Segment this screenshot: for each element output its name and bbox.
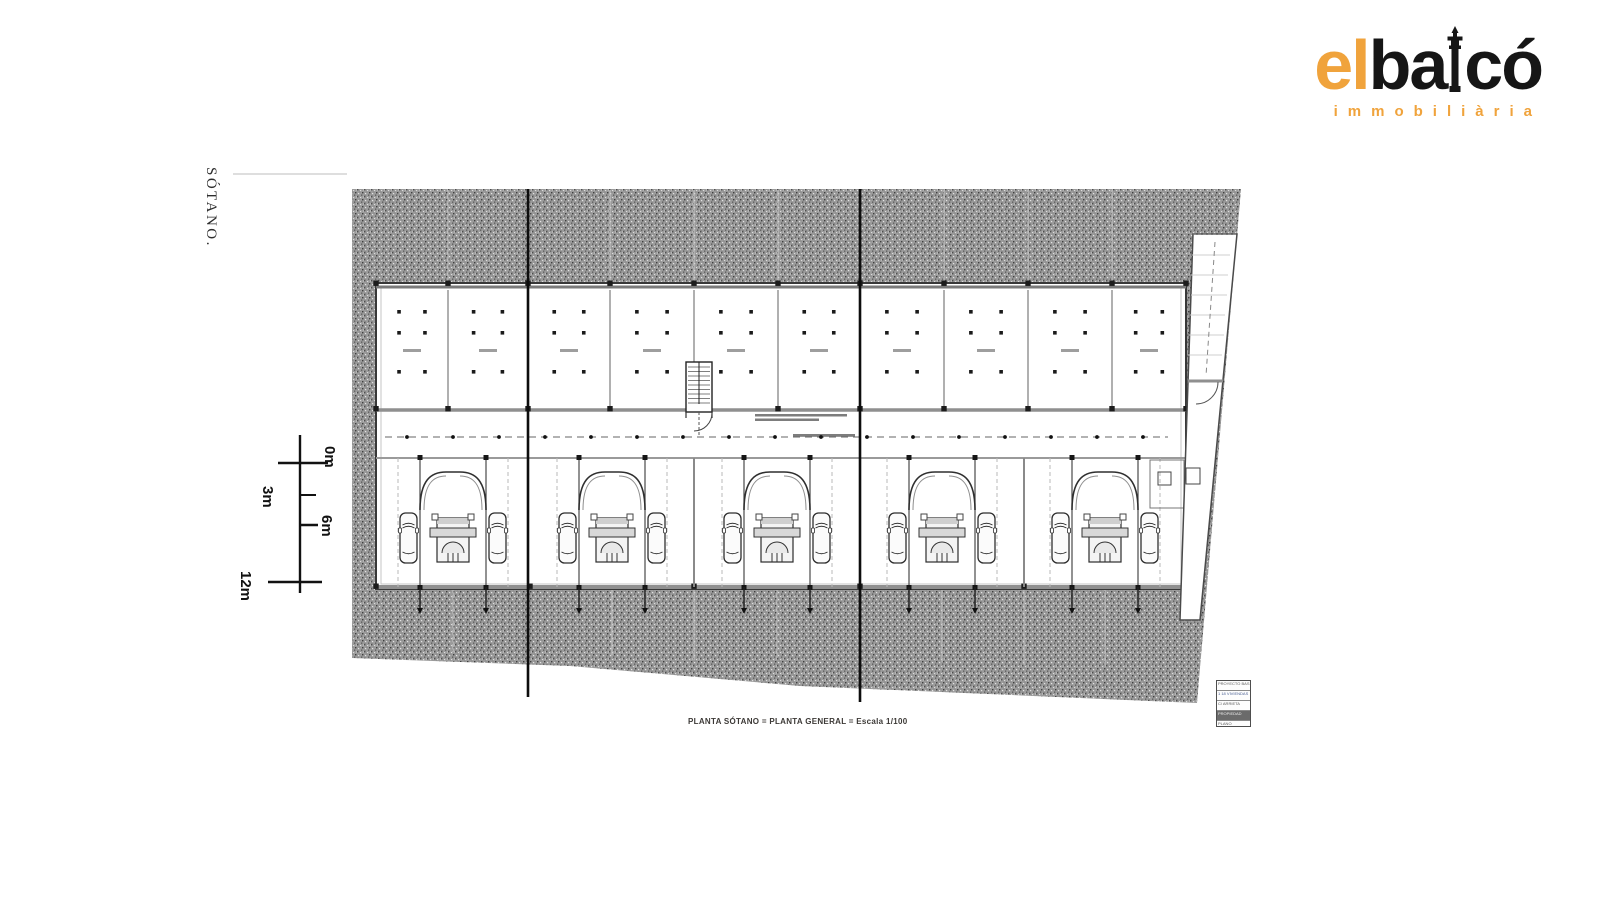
- title-block-row: PROYECTO BAS: [1217, 681, 1250, 691]
- scale-label-6m: 6m: [318, 515, 335, 537]
- title-block-row: PLANO: [1217, 721, 1250, 727]
- brand-word-b: có: [1464, 26, 1542, 104]
- title-block-row: PROPIEDAD: [1217, 711, 1250, 721]
- scale-label-0m: 0m: [321, 446, 338, 468]
- title-block-row: 1 18 VIVIENDAS: [1217, 691, 1250, 701]
- brand-wordmark: elba có: [1278, 26, 1542, 100]
- plan-caption: PLANTA SÓTANO = PLANTA GENERAL = Escala …: [688, 717, 907, 726]
- brand-prefix: el: [1314, 26, 1368, 104]
- title-block-row: C/ ARRIETA: [1217, 701, 1250, 711]
- balcony-column-icon: [1447, 26, 1463, 92]
- title-block: PROYECTO BAS 1 18 VIVIENDAS C/ ARRIETA P…: [1216, 680, 1251, 727]
- floor-plan-drawing: 0m 3m 6m 12m: [0, 0, 1600, 900]
- plan-side-label: SÓTANO.: [202, 167, 219, 248]
- scale-label-12m: 12m: [237, 571, 254, 601]
- scale-bar: 0m 3m 6m 12m: [237, 435, 338, 601]
- page: 0m 3m 6m 12m elba có immobiliària SÓTANO…: [0, 0, 1600, 900]
- brand-tagline: immobiliària: [1278, 103, 1542, 120]
- scale-label-3m: 3m: [259, 486, 276, 508]
- brand-logo: elba có immobiliària: [1278, 26, 1542, 120]
- brand-word-a: ba: [1369, 26, 1447, 104]
